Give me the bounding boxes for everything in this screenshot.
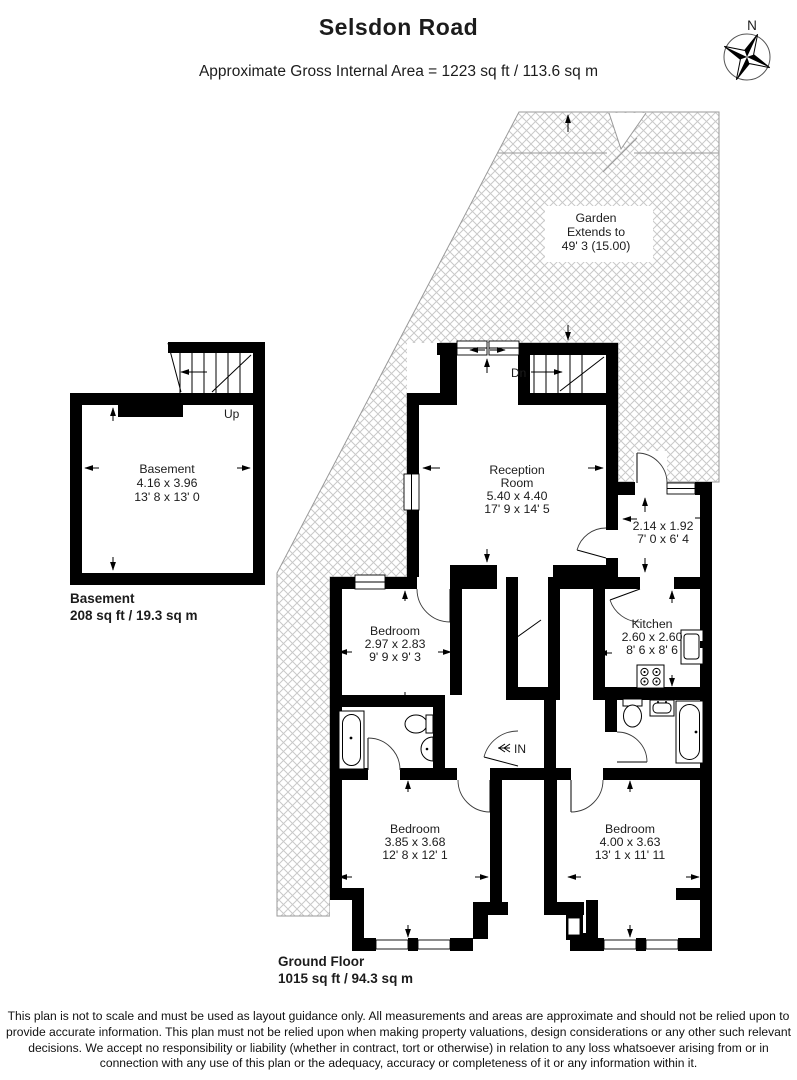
left-bay-window-2 — [418, 940, 450, 949]
path-side-window — [568, 918, 580, 935]
left-bay-window-1 — [376, 940, 408, 949]
kitchen-imperial: 8' 6 x 8' 6 — [626, 643, 678, 657]
bedroom-mid-imperial: 9' 9 x 9' 3 — [369, 650, 421, 664]
compass-star-fill — [724, 34, 769, 79]
basement-plan: Up Basement 4.16 x 3.96 13' 8 x 13' 0 — [70, 342, 265, 585]
garden-extends-label: Extends to — [567, 225, 625, 239]
bedroom-left-name: Bedroom — [390, 822, 440, 836]
disclaimer-line-3: decisions. We accept no responsibility o… — [0, 1041, 797, 1057]
right-bay-window-1 — [604, 940, 636, 949]
basement-caption-area: 208 sq ft / 19.3 sq m — [70, 608, 198, 623]
bedroom-right-metric: 4.00 x 3.63 — [600, 835, 661, 849]
bedroom-right-imperial: 13' 1 x 11' 11 — [595, 848, 666, 862]
hallway-imperial: 7' 0 x 6' 4 — [637, 532, 689, 546]
disclaimer: This plan is not to scale and must be us… — [0, 1009, 797, 1072]
bathtub-left-icon — [339, 711, 364, 769]
kitchen-metric: 2.60 x 2.60 — [622, 630, 683, 644]
bedroom-mid-metric: 2.97 x 2.83 — [365, 637, 426, 651]
ground-caption-name: Ground Floor — [278, 954, 365, 969]
hallway-metric: 2.14 x 1.92 — [633, 519, 694, 533]
reception-imperial: 17' 9 x 14' 5 — [484, 502, 550, 516]
hob-icon — [637, 665, 664, 688]
basement-caption-name: Basement — [70, 591, 135, 606]
kitchen-sink-icon — [681, 630, 705, 664]
bedroom-left-imperial: 12' 8 x 12' 1 — [382, 848, 448, 862]
right-bay-window-2 — [646, 940, 678, 949]
bathtub-right-icon — [676, 701, 703, 763]
sink-right-icon — [650, 700, 674, 716]
reception-name-1: Reception — [489, 463, 545, 477]
disclaimer-line-4: connection with any use of this plan or … — [0, 1056, 797, 1072]
bedroom-right-name: Bedroom — [605, 822, 655, 836]
compass-north-label: N — [747, 18, 757, 33]
reception-metric: 5.40 x 4.40 — [487, 489, 548, 503]
floorplan-page: Selsdon Road Approximate Gross Internal … — [0, 0, 797, 1080]
kitchen-name: Kitchen — [631, 617, 672, 631]
ground-caption-area: 1015 sq ft / 94.3 sq m — [278, 971, 413, 986]
stairs-down-label: Dn — [511, 366, 526, 380]
entrance-in-label: IN — [514, 742, 526, 756]
toilet-left-icon — [405, 715, 433, 733]
floor-plan-drawing: N Garden Extends to 49' 3 (15.00) — [0, 0, 797, 1080]
basement-room-metric: 4.16 x 3.96 — [137, 476, 198, 490]
toilet-right-icon — [623, 699, 642, 727]
stairs-up-label: Up — [224, 407, 240, 421]
basement-room-imperial: 13' 8 x 13' 0 — [134, 490, 200, 504]
bedroom-mid-name: Bedroom — [370, 624, 420, 638]
reception-name-2: Room — [501, 476, 534, 490]
disclaimer-line-2: provide accurate information. This plan … — [0, 1025, 797, 1041]
garden-length-label: 49' 3 (15.00) — [562, 239, 631, 253]
garden-label: Garden — [575, 211, 616, 225]
bedroom-left-metric: 3.85 x 3.68 — [385, 835, 446, 849]
disclaimer-line-1: This plan is not to scale and must be us… — [0, 1009, 797, 1025]
compass-rose-icon: N — [724, 18, 770, 80]
basement-room-name: Basement — [139, 462, 195, 476]
